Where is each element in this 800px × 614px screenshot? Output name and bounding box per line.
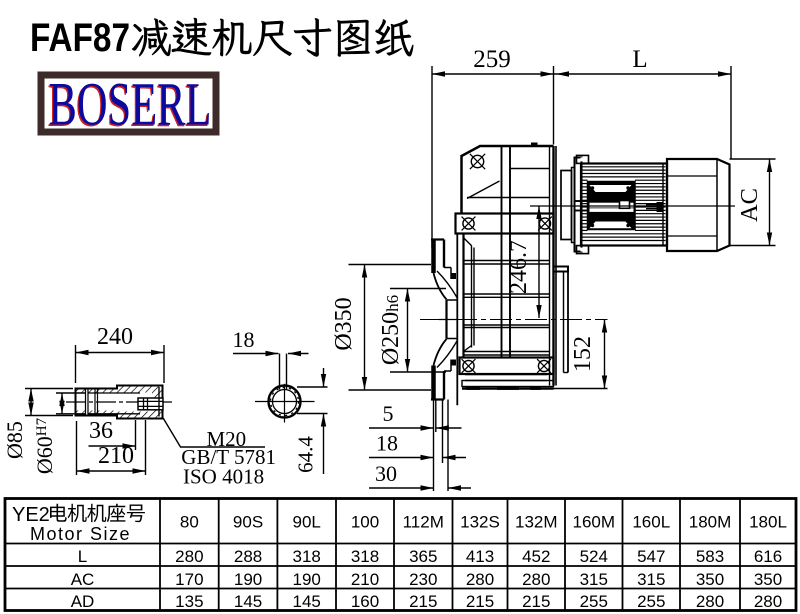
svg-text:Ø85: Ø85	[2, 421, 27, 459]
svg-text:YE2: YE2	[12, 504, 50, 526]
svg-text:18: 18	[233, 327, 255, 352]
svg-text:80: 80	[180, 513, 199, 532]
svg-text:255: 255	[580, 592, 608, 611]
svg-text:524: 524	[580, 547, 608, 566]
svg-text:64.4: 64.4	[294, 436, 318, 473]
svg-text:100: 100	[351, 513, 379, 532]
svg-text:413: 413	[466, 547, 494, 566]
svg-text:180L: 180L	[749, 513, 787, 532]
svg-text:132S: 132S	[460, 513, 500, 532]
svg-text:135: 135	[175, 592, 203, 611]
svg-text:90L: 90L	[293, 513, 321, 532]
svg-text:112M: 112M	[403, 513, 444, 532]
svg-text:280: 280	[466, 570, 494, 589]
svg-text:280: 280	[696, 592, 724, 611]
svg-text:170: 170	[175, 570, 203, 589]
svg-text:18: 18	[376, 431, 398, 456]
svg-text:288: 288	[234, 547, 262, 566]
svg-text:36: 36	[89, 418, 113, 444]
svg-text:145: 145	[234, 592, 262, 611]
svg-text:5: 5	[383, 401, 394, 426]
svg-text:280: 280	[754, 592, 782, 611]
svg-text:255: 255	[637, 592, 665, 611]
svg-text:315: 315	[637, 570, 665, 589]
svg-text:L: L	[78, 547, 87, 566]
svg-text:180M: 180M	[689, 513, 732, 532]
svg-text:318: 318	[351, 547, 379, 566]
svg-text:190: 190	[234, 570, 262, 589]
svg-text:90S: 90S	[233, 513, 263, 532]
svg-text:ISO 4018: ISO 4018	[183, 465, 264, 489]
svg-text:365: 365	[409, 547, 437, 566]
svg-text:215: 215	[466, 592, 494, 611]
svg-text:L: L	[632, 46, 647, 73]
svg-text:246.7: 246.7	[506, 240, 532, 294]
svg-text:215: 215	[409, 592, 437, 611]
svg-text:210: 210	[351, 570, 379, 589]
svg-text:152: 152	[570, 336, 596, 372]
svg-text:280: 280	[522, 570, 550, 589]
svg-text:AC: AC	[736, 188, 763, 222]
svg-text:616: 616	[754, 547, 782, 566]
svg-text:160: 160	[351, 592, 379, 611]
svg-text:AC: AC	[71, 570, 95, 589]
svg-text:230: 230	[409, 570, 437, 589]
svg-text:160L: 160L	[632, 513, 670, 532]
svg-text:215: 215	[522, 592, 550, 611]
svg-text:210: 210	[98, 443, 134, 469]
svg-text:FAF87: FAF87	[30, 16, 130, 60]
svg-text:30: 30	[375, 461, 397, 486]
svg-text:Motor Size: Motor Size	[30, 524, 131, 544]
svg-text:280: 280	[175, 547, 203, 566]
svg-text:Ø350: Ø350	[331, 297, 357, 350]
svg-text:AD: AD	[71, 592, 95, 611]
svg-text:145: 145	[293, 592, 321, 611]
svg-text:160M: 160M	[572, 513, 615, 532]
svg-text:350: 350	[696, 570, 724, 589]
svg-text:240: 240	[97, 324, 133, 350]
svg-text:583: 583	[696, 547, 724, 566]
svg-text:190: 190	[293, 570, 321, 589]
svg-text:BOSERL: BOSERL	[49, 72, 212, 139]
svg-text:132M: 132M	[515, 513, 558, 532]
svg-text:315: 315	[580, 570, 608, 589]
svg-text:452: 452	[522, 547, 550, 566]
svg-text:318: 318	[293, 547, 321, 566]
svg-text:350: 350	[754, 570, 782, 589]
svg-text:547: 547	[637, 547, 665, 566]
svg-text:259: 259	[473, 46, 511, 73]
